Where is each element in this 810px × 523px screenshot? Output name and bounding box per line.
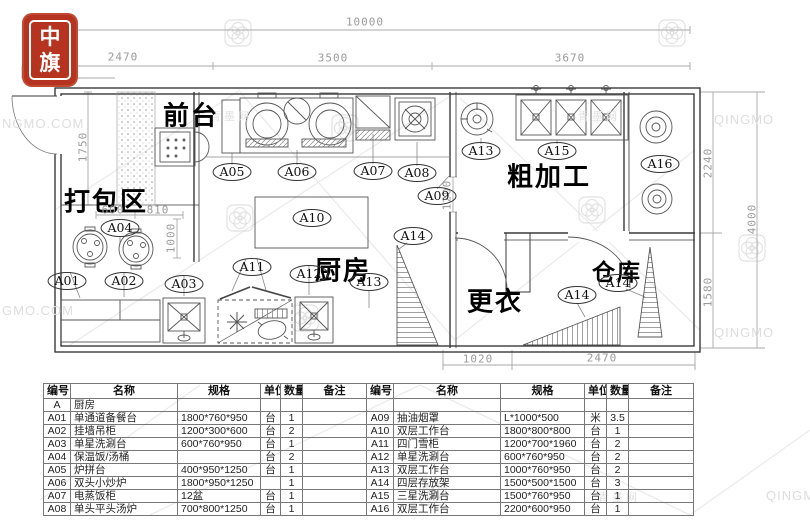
col-header-spec: 规格	[501, 384, 585, 399]
table-row-a05-a13: A05 炉拼台 400*950*1250 台 1 A13 双层工作台 1000*…	[44, 464, 694, 477]
dim-seg-mid: 3500	[318, 52, 349, 65]
tag-a03: A03	[165, 275, 204, 293]
tag-a14-2: A14	[558, 286, 597, 304]
tag-a14-1: A14	[394, 227, 433, 245]
dim-front-depth: 1750	[77, 132, 90, 163]
table-header-row: 编号 名称 规格 单位 数量 备注 编号 名称 规格 单位 数量 备注	[44, 384, 694, 399]
dim-seg-left: 2470	[108, 51, 139, 64]
tag-a10: A10	[293, 209, 332, 227]
tag-a09: A09	[418, 187, 457, 205]
col-header-unit: 单位	[585, 384, 607, 399]
col-header-spec: 规格	[178, 384, 261, 399]
dim-right-lower: 1580	[702, 277, 715, 308]
tag-a14-3: A14	[599, 274, 638, 292]
dim-bottom-right: 2470	[587, 352, 618, 365]
stamp-char-1: 中	[40, 25, 61, 49]
tag-a01: A01	[48, 272, 87, 290]
tag-a13-1: A13	[462, 142, 501, 160]
dim-bottom-left: 1020	[463, 353, 494, 366]
tag-a08: A08	[398, 164, 437, 182]
table-row-a06-a14: A06 双头小炒炉 1800*950*1250 1 A14 四层存放架 1500…	[44, 477, 694, 490]
dim-pack-c: 1000	[165, 223, 178, 254]
watermark-site: QINGMO	[714, 112, 774, 127]
tag-a15: A15	[538, 142, 577, 160]
table-row-a08-a16: A08 单头平头汤炉 700*800*1250 台 1 A16 双层工作台 22…	[44, 503, 694, 516]
stamp-text: 中 旗	[29, 20, 71, 80]
cad-floorplan-page: { "logo": {"char1": "中", "char2": "旗", "…	[0, 0, 810, 523]
col-header-id: 编号	[44, 384, 71, 399]
room-label-rough-processing: 粗加工	[507, 157, 591, 194]
col-header-qty: 数量	[607, 384, 629, 399]
dim-overall-width: 10000	[346, 16, 384, 29]
watermark-site: QINGMO	[766, 488, 810, 503]
cell-category-name: 厨房	[71, 399, 178, 412]
col-header-unit: 单位	[261, 384, 281, 399]
watermark-site: GMO.COM	[2, 303, 74, 318]
cell-category-id: A	[44, 399, 71, 412]
company-stamp-logo: 中 旗	[24, 15, 76, 85]
tag-a16: A16	[641, 155, 680, 173]
table-row-a07-a15: A07 电蒸饭柜 12盆 台 1 A15 三星洗涮台 1500*760*950 …	[44, 490, 694, 503]
table-category-row: A 厨房	[44, 399, 694, 412]
room-label-front-desk: 前台	[163, 96, 219, 133]
tag-a11: A11	[233, 258, 272, 276]
table-row-a03-a11: A03 单星洗涮台 600*760*950 台 1 A11 四门雪柜 1200*…	[44, 438, 694, 451]
dim-seg-right: 3670	[555, 52, 586, 65]
col-header-qty: 数量	[281, 384, 303, 399]
tag-a13-2: A13	[350, 273, 389, 291]
tag-a06: A06	[278, 163, 317, 181]
watermark-site: QINGMO	[714, 325, 774, 340]
table-row-a01-a09: A01 单通道备餐台 1800*760*950 台 1 A09 抽油烟罩 L*1…	[44, 412, 694, 425]
tag-a05: A05	[213, 163, 252, 181]
tag-a12: A12	[290, 265, 329, 283]
watermark-site: NGMO.COM	[2, 116, 84, 131]
col-header-id: 编号	[367, 384, 394, 399]
watermark-cjk: 青墨网	[578, 108, 620, 124]
room-label-changing: 更衣	[467, 282, 523, 319]
table-row-a04-a12: A04 保温饭/汤桶 台 2 A12 单星洗涮台 600*760*950 台 2	[44, 451, 694, 464]
equipment-schedule-table: 编号 名称 规格 单位 数量 备注 编号 名称 规格 单位 数量 备注 A 厨房…	[43, 383, 694, 516]
tag-a02: A02	[105, 272, 144, 290]
col-header-note: 备注	[303, 384, 367, 399]
dim-pack-b: 810	[147, 204, 170, 217]
stamp-char-2: 旗	[40, 51, 61, 75]
tag-a04: A04	[101, 219, 140, 237]
col-header-note: 备注	[629, 384, 694, 399]
dim-right-upper: 2240	[702, 148, 715, 179]
col-header-name: 名称	[71, 384, 178, 399]
col-header-name: 名称	[394, 384, 501, 399]
dim-overall-height: 4000	[746, 204, 759, 235]
table-row-a02-a10: A02 挂墙吊柜 1200*300*600 台 2 A10 双层工作台 1800…	[44, 425, 694, 438]
tag-a07: A07	[354, 162, 393, 180]
dim-pack-a: 600	[102, 204, 125, 217]
